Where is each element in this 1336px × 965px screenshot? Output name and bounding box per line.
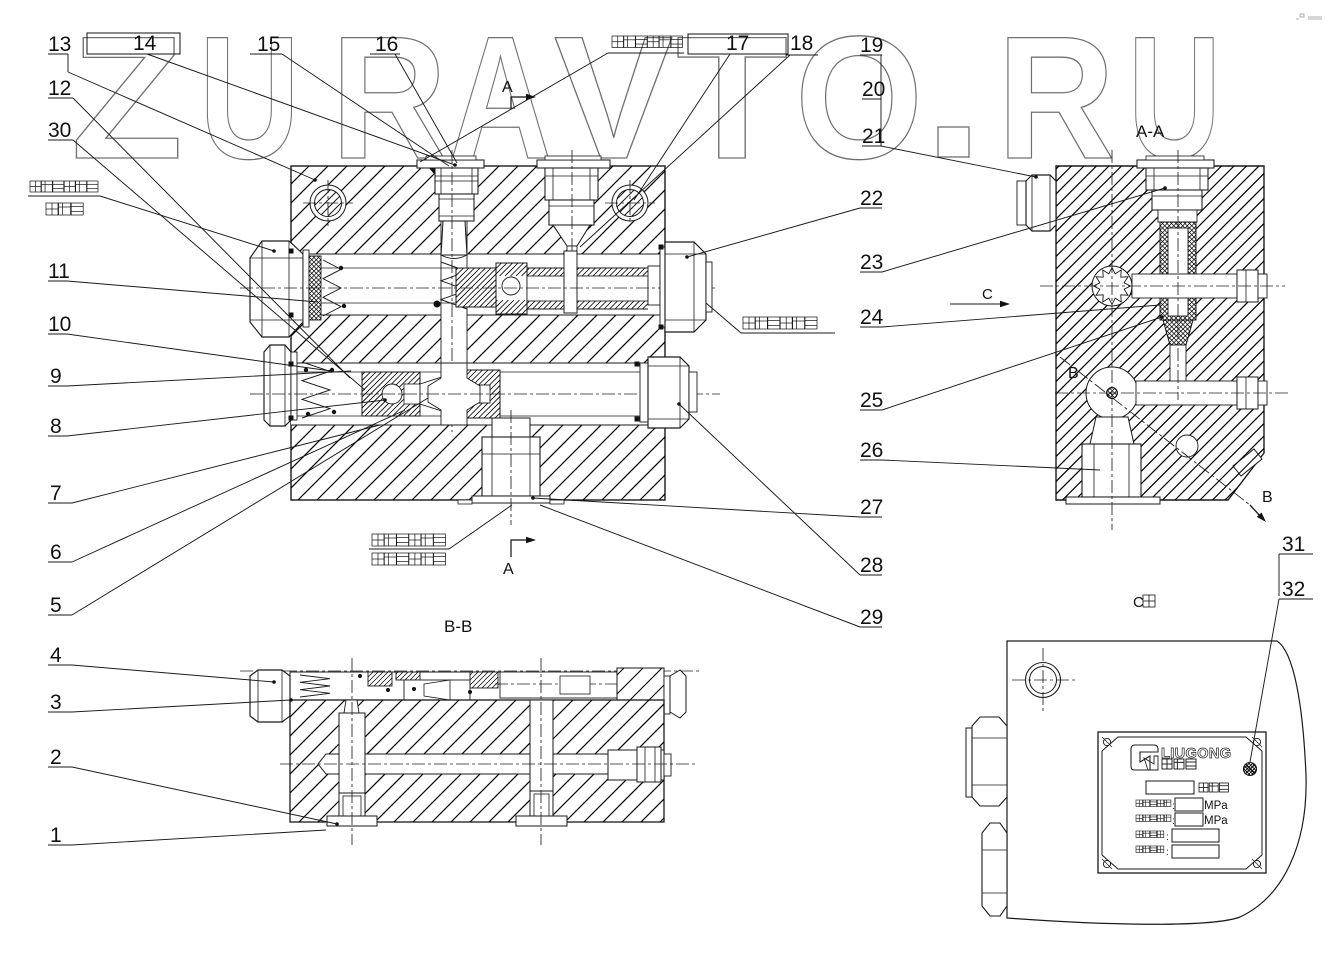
svg-text:B-B: B-B [444,617,472,636]
svg-text:29: 29 [860,606,883,629]
svg-text:16: 16 [375,33,398,56]
svg-text:31: 31 [1282,533,1305,556]
svg-text:C: C [982,286,993,303]
svg-text:4: 4 [50,644,62,667]
svg-text:3: 3 [50,691,62,714]
svg-text:30: 30 [48,119,71,142]
svg-text:25: 25 [860,389,883,412]
svg-text:11: 11 [48,260,70,283]
svg-text:2: 2 [50,746,62,769]
svg-text:21: 21 [862,125,885,148]
svg-text::: : [1166,847,1169,858]
svg-text::: : [1172,816,1175,827]
svg-text:18: 18 [790,32,813,55]
svg-text:14: 14 [133,32,157,55]
svg-text:B: B [1068,365,1079,382]
svg-text:28: 28 [860,554,883,577]
svg-text::: : [1166,832,1169,843]
svg-text:12: 12 [48,77,71,100]
svg-text:10: 10 [48,313,71,336]
svg-text:24: 24 [860,306,884,329]
svg-text:6: 6 [50,541,62,564]
svg-text:19: 19 [860,34,883,57]
svg-text:Z: Z [71,1,183,196]
svg-text:B: B [1262,489,1273,506]
svg-text:O: O [795,1,923,196]
svg-text:15: 15 [257,33,280,56]
svg-text:C: C [1133,594,1144,611]
svg-text:26: 26 [860,439,883,462]
svg-text:MPa: MPa [1204,815,1228,827]
svg-text:13: 13 [48,33,71,56]
svg-text:32: 32 [1282,578,1305,601]
svg-text:27: 27 [860,496,883,519]
svg-text:A-A: A-A [1136,122,1165,141]
svg-text:20: 20 [862,78,885,101]
svg-text:23: 23 [860,251,883,274]
svg-text:7: 7 [50,482,62,505]
svg-text:22: 22 [860,187,883,210]
svg-text:8: 8 [50,415,62,438]
svg-text:5: 5 [50,594,62,617]
svg-text::: : [1172,801,1175,812]
svg-text:9: 9 [50,365,62,388]
svg-text:17: 17 [726,32,749,55]
svg-text:1: 1 [50,824,62,847]
svg-text:MPa: MPa [1204,800,1228,812]
svg-text:T: T [676,1,788,196]
svg-text:A: A [503,561,514,578]
svg-text:A: A [502,79,513,96]
